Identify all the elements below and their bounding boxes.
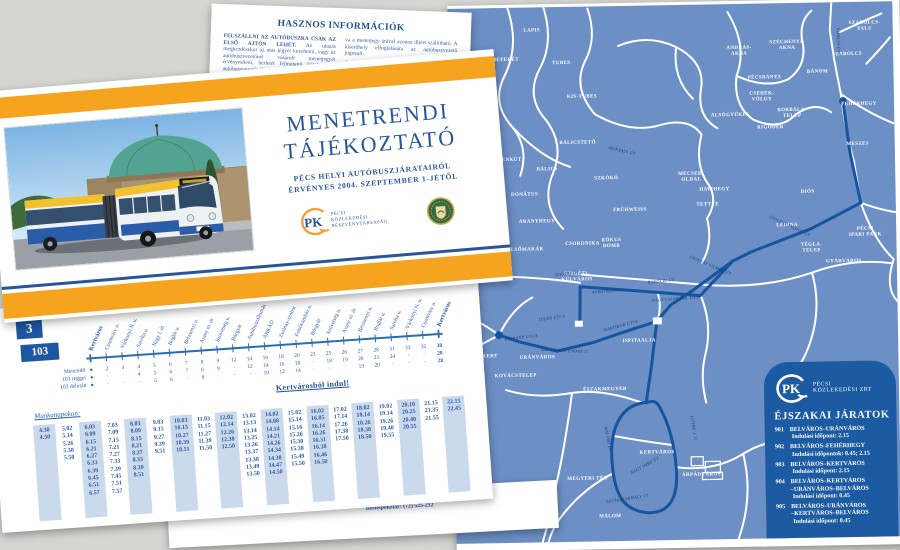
departure-column: 9.039.159.279.399.51	[147, 416, 172, 457]
map-area-label: FEHÉRHEGY	[841, 101, 877, 108]
departure-time: 9.51	[149, 448, 171, 457]
map-road-label: NAGY IMRE ÚT	[629, 455, 660, 475]
travel-minutes: 20	[358, 356, 364, 362]
night-route-name: BELVÁROS–URÁNVÁROS –KERTVÁROS–BELVÁROS	[791, 503, 869, 519]
departure-time: 20.55	[399, 423, 421, 432]
travel-minutes: ·	[329, 366, 331, 372]
travel-minutes: 5	[154, 378, 157, 384]
night-route-departure: Indulási időpont: 0.45	[791, 493, 869, 502]
map-page: REMETERÉTLAPISTUBESKIS-TUBESISTENKÚTBÁLI…	[447, 0, 900, 550]
departure-column: 21.1521.3521.55	[420, 397, 444, 423]
night-route-number: 904	[776, 479, 791, 501]
travel-minutes: 8	[201, 367, 204, 373]
map-area-label: TELEP	[783, 114, 801, 119]
stop-name: Sarolta u.	[389, 309, 403, 331]
departure-time: 4.50	[34, 434, 56, 443]
map-area-label: FALU	[857, 26, 872, 31]
departure-time: 18.50	[354, 434, 376, 443]
travel-minutes: 23	[310, 352, 316, 358]
map-area-label: SZÉCHENYI-	[769, 39, 804, 46]
travel-minutes: 7	[185, 361, 188, 367]
stop-name: Nagy I. út	[152, 324, 167, 347]
departure-time: 6.57	[83, 489, 105, 498]
departure-time: 10.51	[172, 447, 194, 456]
stop-name: Boglár u.	[373, 310, 387, 332]
travel-minutes: ·	[139, 379, 141, 385]
travel-minutes: 28	[373, 347, 379, 353]
travel-minutes: ●	[91, 382, 95, 388]
brochure-cover: MENETRENDI TÁJÉKOZTATÓ PÉCS HELYI AUTÓBU…	[0, 49, 513, 323]
map-area-label: MECSEK-	[678, 172, 704, 177]
stop-name: Szövetség u.	[326, 307, 343, 335]
pk-logo-night: PK PÉCSI KÖZLEKEDÉSI ZRT	[774, 370, 889, 404]
travel-minutes: ·	[107, 374, 109, 380]
travel-minutes: 19	[342, 357, 348, 363]
travel-minutes: 9	[217, 366, 220, 372]
map-road-label: ALKOTMÁNY U.	[591, 287, 625, 294]
stop-name: Kertváros	[436, 300, 453, 328]
pk-logo-cover: PK PÉCSI KÖZLEKEDÉSI RÉSZVÉNYTÁRSASÁG	[296, 197, 406, 240]
travel-minutes: 26	[342, 349, 348, 355]
travel-minutes: 35	[421, 344, 427, 350]
travel-minutes: ·	[423, 352, 425, 358]
travel-minutes: 5	[154, 370, 157, 376]
travel-minutes: 9	[216, 358, 219, 364]
travel-minutes: 21	[374, 355, 380, 361]
map-area-label: MÁLOM	[599, 513, 621, 519]
stop-name: Arany m. út	[342, 307, 358, 334]
travel-minutes: ·	[424, 359, 426, 365]
travel-minutes: 6	[169, 369, 172, 375]
map-area-label: CSORONIKA	[565, 241, 600, 247]
travel-minutes: ·	[107, 381, 109, 387]
travel-minutes: 6	[169, 362, 172, 368]
departure-time: 15.50	[287, 460, 309, 469]
departure-time: 22.45	[443, 406, 465, 415]
stop-name: Csontváry u.	[104, 322, 121, 351]
map-area-label: OLDAL	[681, 177, 701, 182]
map-area-label: DOMB	[603, 244, 621, 249]
map-road-label: TÜZÉR UTCA	[538, 313, 566, 322]
travel-minutes: 24	[390, 354, 396, 360]
map-area-label: ÉSZAKMEGYER	[583, 386, 627, 393]
travel-minutes: 14	[263, 362, 269, 368]
map-area-label: FRÜHWEISS	[613, 207, 647, 214]
travel-minutes: ·	[312, 359, 314, 365]
map-area-label: TÉGLA-	[801, 241, 823, 247]
stop-name: Boglár u.	[167, 325, 181, 347]
departure-time: 5.50	[58, 454, 80, 463]
map-area-label: ÁRPÁDVÁROS	[682, 471, 721, 478]
map-area-label: DONÁTUS	[511, 191, 538, 197]
travel-minutes: 2	[106, 366, 109, 372]
departure-time: 13.50	[242, 471, 264, 480]
travel-minutes: ·	[233, 365, 235, 371]
travel-minutes: ·	[234, 372, 236, 378]
map-area-label: BÁNOM	[807, 68, 828, 74]
map-area-label: AKNA	[731, 52, 747, 57]
night-route-departure: Indulási időpont: 2.15	[790, 468, 865, 477]
stop-name: Sarolta u.	[136, 326, 150, 348]
map-area-label: AKNA	[779, 46, 795, 51]
legend-row-label: Menetidő	[64, 368, 86, 375]
departure-column: 22.1522.45	[442, 395, 471, 492]
map-area-label: SZABOLCS-	[849, 20, 881, 26]
departure-time: 12.50	[217, 443, 239, 452]
map-area-label: HAVIHEGY	[699, 187, 729, 193]
travel-minutes: ·	[313, 367, 315, 373]
map-area-label: RIGÓDER	[757, 124, 784, 130]
night-route-number: 901	[775, 427, 790, 442]
departure-time: 16.50	[310, 459, 332, 468]
travel-minutes: 20	[294, 353, 300, 359]
night-route-departure: Indulási időpont: 2.15	[790, 433, 865, 442]
travel-minutes: 16	[262, 355, 268, 361]
map-road-label: ZSOLNAY VILMOS ÚT	[769, 214, 812, 238]
travel-minutes: 18	[278, 354, 284, 360]
travel-minutes: ·	[123, 380, 125, 386]
departure-time: 21.55	[421, 414, 443, 423]
night-route: 904BELVÁROS–KERTVÁROS –URÁNVÁROS–BELVÁRO…	[776, 478, 890, 502]
travel-minutes: 12	[279, 369, 285, 375]
map-area-label: BÁLICS	[537, 166, 558, 172]
night-route-name: BELVÁROS–KERTVÁROS –URÁNVÁROS–BELVÁROS	[791, 478, 869, 494]
travel-minutes: 6	[170, 377, 173, 383]
travel-minutes: 8	[201, 359, 204, 365]
travel-minutes: 31	[389, 346, 395, 352]
travel-minutes: 19	[358, 363, 364, 369]
map-area-label: KIS-TUBES	[567, 94, 597, 100]
map-area-label: VÖLGY	[752, 96, 772, 102]
travel-minutes: 4	[138, 371, 141, 377]
pecs-coat-of-arms-icon	[426, 195, 456, 227]
travel-minutes: ·	[392, 361, 394, 367]
travel-minutes: ·	[344, 365, 346, 371]
night-route-number: 902	[775, 444, 790, 459]
night-route-number: 905	[776, 504, 791, 526]
departure-column: 19.0219.1419.2619.4019.55	[374, 400, 399, 441]
departure-time: 11.50	[194, 445, 216, 454]
departure-column: 11.0311.1511.2711.3911.50	[192, 413, 217, 454]
night-route: 903BELVÁROS–KERTVÁROSIndulási időpont: 2…	[775, 460, 889, 477]
departure-column: 5.025.145.265.385.50	[56, 422, 81, 463]
night-routes-panel: PK PÉCSI KÖZLEKEDÉSI ZRT ÉJSZAKAI JÁRATO…	[764, 360, 899, 538]
departure-time: 19.55	[376, 432, 398, 441]
map-area-label: TETTYE	[696, 202, 719, 207]
scan-canvas: REMETERÉTLAPISTUBESKIS-TUBESISTENKÚTBÁLI…	[0, 0, 900, 550]
map-area-label: RÓKUS	[601, 237, 621, 243]
map-terminal-dots	[491, 97, 851, 339]
map-road-label: PÁFRÁNY UTCA	[503, 333, 538, 342]
stop-name: Bőrgyár	[231, 323, 244, 342]
night-route: 901BELVÁROS–URÁNVÁROSIndulási időpont: 2…	[775, 425, 889, 442]
travel-minutes: 28	[437, 350, 443, 356]
map-road-label: RÁKÓCZI ÚT	[646, 277, 675, 284]
stop-name: Berzsenyi u.	[357, 305, 374, 333]
map-area-label: TELEP	[802, 248, 820, 253]
travel-minutes: 5	[153, 363, 156, 369]
map-area-label: GYÁRVÁROS	[826, 258, 862, 265]
night-company-line2: KÖZLEKEDÉSI ZRT	[813, 387, 872, 395]
bus-photo-illustration	[4, 108, 253, 269]
map-area-label: ISPITAALJA	[622, 338, 655, 344]
svg-text:PK: PK	[304, 214, 324, 231]
map-road-label: DR. VERESS ENDRE U.	[541, 347, 590, 355]
departure-time: 14.50	[265, 469, 287, 478]
workdays-label: Munkanapokon:	[34, 409, 80, 420]
travel-minutes: 28	[438, 358, 444, 364]
travel-minutes: ●	[89, 367, 93, 373]
map-area-label: ARANYHEGY	[519, 219, 555, 225]
map-road-label: HUNYADI ÚT	[607, 145, 636, 156]
stop-name: Szövetség u.	[215, 315, 232, 343]
map-area-label: BORBÁLA-	[777, 107, 807, 114]
travel-minutes: 8	[202, 375, 205, 381]
map-area-label: MESZES	[846, 142, 869, 147]
travel-minutes: 10	[264, 370, 270, 376]
stop-name: ÁRKÁD	[261, 319, 276, 340]
travel-minutes: ·	[122, 373, 124, 379]
map-area-label: BÁLICSTETŐ	[559, 139, 596, 146]
map-area-label: CSERÉK-	[749, 90, 774, 96]
travel-minutes: ●	[90, 375, 94, 381]
travel-minutes: ·	[218, 374, 220, 380]
travel-minutes: ·	[249, 371, 251, 377]
travel-minutes: 18	[295, 360, 301, 366]
travel-minutes: 25	[326, 350, 332, 356]
night-routes-list: 901BELVÁROS–URÁNVÁROSIndulási időpont: 2…	[775, 425, 891, 526]
stop-name: Bőrgyár	[310, 318, 323, 337]
travel-minutes: ·	[408, 360, 410, 366]
map-road-label: KOMLÓI ÚT	[836, 27, 841, 54]
travel-minutes: 4	[137, 364, 140, 370]
night-route: 905BELVÁROS–URÁNVÁROS –KERTVÁROS–BELVÁRO…	[776, 502, 890, 526]
stop-name: Arany m. út	[199, 317, 215, 344]
travel-minutes: 14	[295, 368, 301, 374]
night-panel-title: ÉJSZAKAI JÁRATOK	[774, 409, 888, 422]
map-area-label: KÜLVÁROS	[561, 276, 592, 283]
departure-time: 7.57	[106, 488, 128, 497]
travel-minutes: 14	[247, 356, 253, 362]
map-area-label: KERTVÁROS	[639, 449, 674, 456]
travel-minutes: 20	[374, 362, 380, 368]
departure-column: 17.0217.1417.2617.3817.50	[329, 403, 354, 444]
city-map: REMETERÉTLAPISTUBESKIS-TUBESISTENKÚTBÁLI…	[447, 1, 900, 544]
map-area-label: LAPIS	[523, 28, 540, 33]
map-area-label: ALSÓGYÜKÉS	[711, 112, 750, 119]
map-area-label: URÁNVÁROS	[520, 354, 556, 361]
departure-column: 15.0215.1415.1615.2615.3015.3815.4915.50	[283, 406, 309, 469]
map-road-label: SZTÁRAI MIHÁLY ÚT	[606, 493, 650, 505]
travel-minutes: 7	[185, 368, 188, 374]
travel-minutes: 33	[405, 345, 411, 351]
night-route: 902BELVÁROS–FEHÉRHEGYIndulási időpontok:…	[775, 443, 889, 460]
departure-time: 17.50	[331, 435, 353, 444]
pk-monogram-icon: PK	[774, 372, 809, 405]
travel-minutes: 12	[247, 364, 253, 370]
travel-minutes: 27	[357, 348, 363, 354]
map-area-label: DIÓS	[801, 189, 815, 195]
map-area-label: PÉCSBÁNYA	[748, 74, 782, 81]
cover-text-block: MENETRENDI TÁJÉKOZTATÓ PÉCS HELYI AUTÓBU…	[248, 94, 496, 243]
night-route-departure: Indulási időpont: 0.45	[791, 518, 869, 527]
map-road-label: MÁLOMI ÚT	[603, 425, 613, 452]
travel-minutes: 16	[279, 361, 285, 367]
travel-minutes: 12	[231, 357, 237, 363]
map-road-label: LITTKE J. U.	[689, 414, 698, 442]
travel-minutes: 18	[326, 358, 332, 364]
map-area-label: IPARI PARK	[849, 232, 882, 238]
stop-name: Berzsenyi u.	[183, 317, 200, 345]
legend-row-label: 103 délután	[60, 383, 87, 391]
cover-photo-bus-mosque	[4, 108, 253, 269]
svg-text:PK: PK	[782, 381, 801, 396]
travel-minutes: 3	[121, 365, 124, 371]
map-area-label: MEGYERI TÉR	[567, 475, 607, 482]
night-route-departure: Indulási időpontok: 0.45; 2.15	[790, 450, 870, 459]
travel-minutes: ·	[186, 376, 188, 382]
map-area-label: SZKÓKÓ	[594, 175, 618, 181]
map-area-label: TUBES	[552, 61, 570, 66]
map-area-label: PÉCSI	[857, 226, 874, 232]
map-area-label: ANDRÁS-	[726, 45, 751, 51]
legend-row-label: 103 reggel	[62, 375, 87, 383]
travel-minutes: 38	[437, 343, 443, 349]
stop-name: Kertváros	[87, 324, 104, 352]
departure-time: 8.51	[128, 472, 150, 481]
travel-minutes: ·	[407, 353, 409, 359]
night-route-number: 903	[775, 462, 790, 477]
map-area-label: KOVÁCSTELEP	[495, 372, 537, 379]
